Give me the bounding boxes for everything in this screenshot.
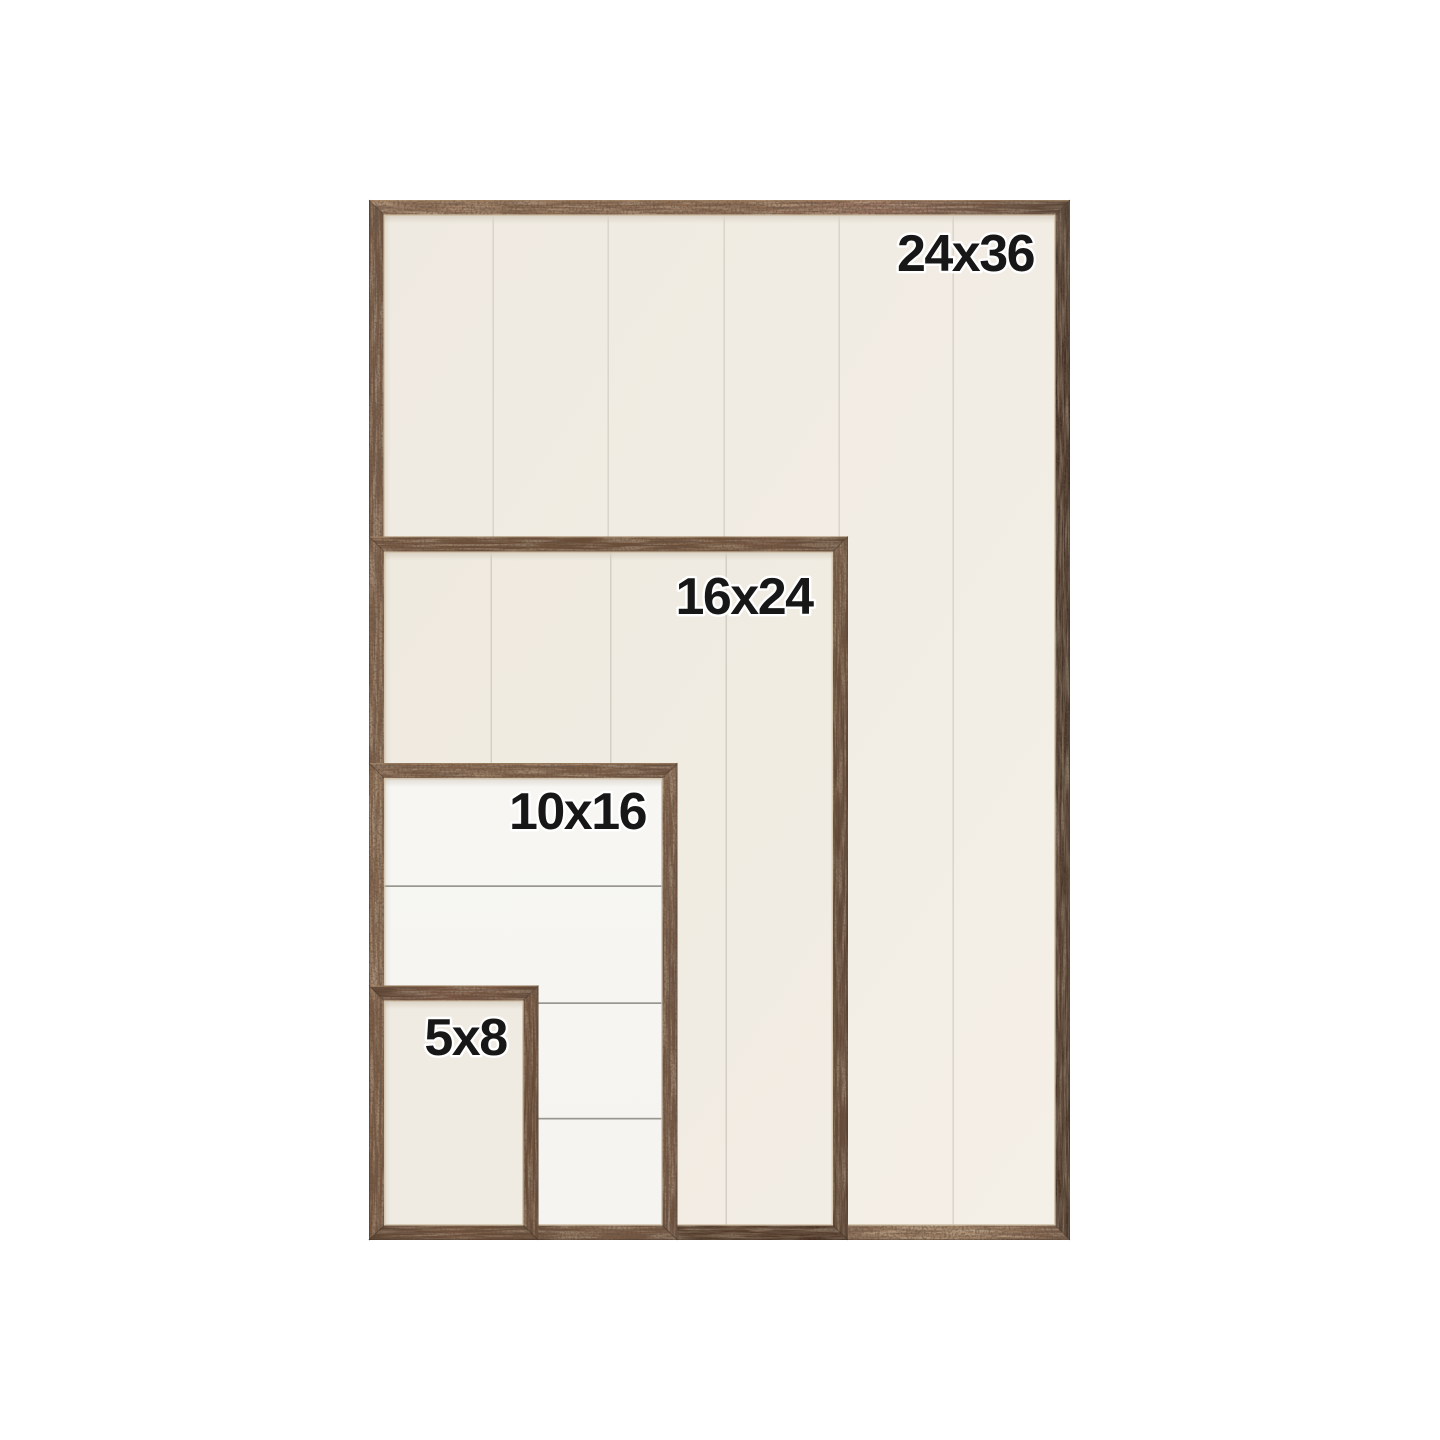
svg-text:16x24: 16x24 bbox=[675, 568, 814, 626]
svg-text:5x8: 5x8 bbox=[424, 1009, 507, 1067]
svg-text:24x36: 24x36 bbox=[897, 225, 1035, 283]
svg-text:10x16: 10x16 bbox=[509, 783, 647, 841]
